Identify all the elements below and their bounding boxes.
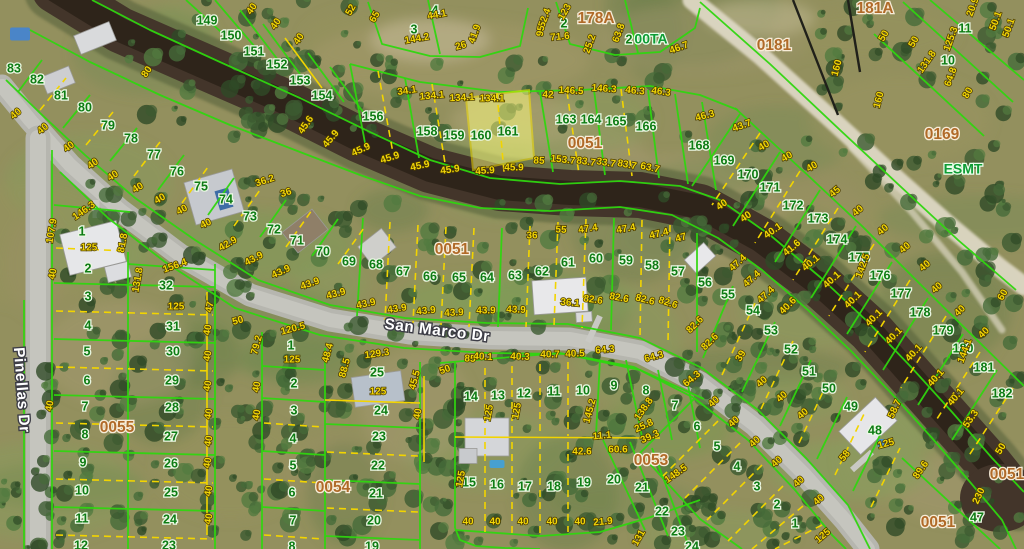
- lot-number-label: 24: [163, 512, 177, 526]
- block-number-label: 0051: [568, 135, 603, 152]
- lot-number-label: 77: [147, 147, 161, 161]
- lot-number-label: 63: [508, 268, 522, 282]
- block-number-label: 181A: [856, 0, 893, 17]
- lot-number-label: 50: [822, 381, 836, 395]
- dimension-label: 134.1: [479, 94, 504, 105]
- lot-number-label: 11: [75, 511, 88, 525]
- lot-number-label: 27: [164, 429, 178, 443]
- dimension-label: 43.9: [476, 306, 496, 317]
- dimension-label: 45.9: [504, 163, 524, 174]
- pool: [10, 28, 30, 41]
- lot-number-label: 31: [166, 319, 180, 333]
- dimension-label: 36.1: [560, 297, 581, 310]
- lot-number-label: 13: [491, 388, 505, 402]
- lot-number-label: 164: [581, 112, 602, 126]
- lot-number-label: 169: [714, 153, 735, 167]
- block-number-label: 0181: [757, 37, 792, 54]
- dimension-label: 40.1: [473, 351, 493, 363]
- lot-number-label: 16: [490, 477, 504, 491]
- lot-number-label: 21: [635, 480, 649, 494]
- block-number-label: 0051: [435, 241, 470, 258]
- dimension-label: 40: [489, 517, 501, 528]
- dimension-label: 40: [546, 517, 558, 528]
- lot-number-label: 178: [910, 305, 931, 319]
- lot-number-label: 59: [619, 253, 633, 267]
- lot-number-label: 81: [54, 88, 68, 102]
- lot-number-label: 181: [974, 360, 995, 374]
- dimension-label: 60.6: [608, 445, 628, 456]
- lot-number-label: 25: [164, 485, 178, 499]
- dimension-label: 134.1: [449, 92, 475, 104]
- lot-number-label: 70: [316, 244, 330, 258]
- dimension-label: 40: [574, 517, 586, 528]
- lot-number-label: 83: [7, 61, 21, 75]
- lot-number-label: 23: [671, 524, 685, 538]
- lot-number-label: 158: [417, 124, 438, 138]
- lot-number-label: 7: [672, 398, 679, 412]
- house-roof: [459, 449, 477, 464]
- lot-number-label: 2: [85, 261, 92, 275]
- lot-number-label: 163: [556, 112, 577, 126]
- dimension-label: 85: [533, 155, 545, 167]
- lot-number-label: 1: [288, 338, 295, 352]
- lot-number-label: 71: [290, 233, 304, 247]
- dimension-label: 45.9: [475, 165, 496, 177]
- lot-number-label: 8: [82, 427, 89, 441]
- lot-number-label: 149: [197, 13, 218, 27]
- lot-number-label: 5: [714, 439, 721, 453]
- lot-number-label: 21: [369, 486, 383, 500]
- lot-number-label: 179: [933, 323, 954, 337]
- lot-number-label: 150: [221, 28, 242, 42]
- lot-number-label: 29: [165, 373, 179, 387]
- lot-number-label: 2: [291, 376, 298, 390]
- map-code-label: ESMT: [944, 161, 983, 177]
- pool: [490, 460, 505, 468]
- lot-number-label: 61: [561, 255, 575, 269]
- dimension-label: 11.1: [592, 430, 612, 443]
- lot-number-label: 170: [738, 167, 759, 181]
- lot-number-label: 6: [84, 373, 91, 387]
- lot-number-label: 54: [746, 303, 760, 317]
- lot-number-label: 52: [784, 342, 798, 356]
- dimension-label: 125: [81, 243, 98, 254]
- lot-number-label: 7: [290, 513, 297, 527]
- lot-number-label: 1: [792, 516, 799, 530]
- lot-number-label: 2: [626, 32, 633, 46]
- dimension-label: 36: [526, 231, 538, 242]
- lot-number-label: 20: [367, 513, 381, 527]
- lot-number-label: 173: [808, 211, 829, 225]
- lot-number-label: 159: [444, 128, 465, 142]
- lot-number-label: 5: [290, 458, 297, 472]
- lot-number-label: 7: [82, 399, 89, 413]
- lot-number-label: 174: [827, 232, 848, 246]
- lot-number-label: 18: [547, 479, 561, 493]
- lot-number-label: 67: [396, 264, 410, 278]
- lot-number-label: 55: [721, 287, 735, 301]
- lot-number-label: 25: [370, 365, 384, 379]
- lot-number-label: 172: [783, 198, 804, 212]
- lot-number-label: 168: [689, 138, 710, 152]
- lot-number-label: 8: [289, 539, 296, 549]
- lot-number-label: 151: [244, 44, 265, 58]
- lot-number-label: 23: [162, 538, 176, 549]
- lot-number-label: 56: [698, 275, 712, 289]
- lot-number-label: 12: [517, 386, 531, 400]
- lot-number-label: 10: [941, 53, 955, 67]
- dimension-label: 40.7: [540, 350, 560, 361]
- dimension-label: 43.9: [506, 304, 526, 316]
- lot-number-label: 47: [970, 510, 984, 524]
- dimension-label: 55: [555, 224, 567, 236]
- lot-number-label: 24: [374, 403, 388, 417]
- lot-number-label: 30: [166, 344, 180, 358]
- lot-number-label: 22: [371, 458, 385, 472]
- lot-number-label: 65: [452, 270, 466, 284]
- dimension-label: 71.6: [550, 31, 571, 44]
- lot-number-label: 68: [369, 257, 383, 271]
- dimension-label: 40: [517, 517, 529, 528]
- lot-number-label: 6: [289, 485, 296, 499]
- block-number-label: 0054: [316, 479, 351, 496]
- lot-number-label: 72: [267, 222, 281, 236]
- lot-number-label: 4: [85, 318, 92, 332]
- dimension-label: 146.5: [558, 85, 584, 97]
- lot-number-label: 23: [372, 429, 386, 443]
- parcel-map-viewport[interactable]: 8382818079787776757473727170696867666564…: [0, 0, 1024, 549]
- dimension-label: 64.3: [595, 344, 616, 357]
- dimension-label: 43.9: [416, 305, 437, 318]
- lot-number-label: 80: [78, 100, 92, 114]
- lot-number-label: 11: [958, 21, 971, 35]
- dimension-label: 125: [168, 302, 185, 313]
- lot-number-label: 4: [734, 459, 741, 473]
- lot-number-label: 58: [645, 258, 659, 272]
- lot-number-label: 64: [480, 270, 494, 284]
- lot-number-label: 160: [471, 128, 492, 142]
- lot-number-label: 26: [164, 456, 178, 470]
- lot-number-label: 49: [844, 399, 858, 413]
- lot-number-label: 62: [535, 264, 549, 278]
- lot-number-label: 79: [101, 118, 115, 132]
- lot-number-label: 53: [764, 323, 778, 337]
- lot-number-label: 2: [774, 497, 781, 511]
- lot-number-label: 82: [30, 72, 44, 86]
- lot-number-label: 19: [577, 475, 591, 489]
- lot-number-label: 19: [365, 539, 379, 549]
- lot-line-yellow: [455, 437, 660, 438]
- lot-number-label: 171: [760, 180, 781, 194]
- map-code-label: 00TA: [634, 31, 667, 47]
- lot-number-label: 156: [363, 109, 384, 123]
- lot-number-label: 60: [589, 251, 603, 265]
- lot-number-label: 20: [607, 472, 621, 486]
- lot-number-label: 66: [423, 269, 437, 283]
- lot-number-label: 17: [518, 479, 532, 493]
- block-number-label: 0055: [100, 419, 135, 436]
- lot-number-label: 6: [694, 419, 701, 433]
- lot-number-label: 182: [992, 386, 1013, 400]
- lot-number-label: 153: [290, 73, 311, 87]
- lot-number-label: 22: [655, 504, 669, 518]
- lot-number-label: 75: [194, 179, 208, 193]
- lot-number-label: 3: [291, 403, 298, 417]
- block-number-label: 0053: [634, 452, 669, 469]
- dimension-label: 40.5: [565, 348, 585, 360]
- dimension-label: 42: [542, 89, 554, 101]
- dimension-label: 43.9: [444, 307, 464, 319]
- lot-number-label: 57: [671, 264, 685, 278]
- lot-number-label: 154: [312, 88, 333, 102]
- block-number-label: 178A: [577, 10, 614, 27]
- lot-number-label: 165: [606, 114, 627, 128]
- dimension-label: 146.3: [591, 83, 617, 96]
- lot-number-label: 10: [75, 483, 89, 497]
- lot-number-label: 51: [802, 364, 816, 378]
- lot-number-label: 76: [170, 164, 184, 178]
- lot-number-label: 161: [498, 124, 519, 138]
- block-number-label: 0051: [921, 514, 956, 531]
- dimension-label: 46.3: [625, 85, 646, 98]
- lot-number-label: 12: [74, 538, 88, 549]
- lot-number-label: 9: [80, 455, 87, 469]
- lot-number-label: 1: [79, 224, 86, 238]
- lot-number-label: 9: [611, 378, 618, 392]
- dimension-label: 21.9: [593, 516, 614, 529]
- lot-number-label: 152: [267, 57, 288, 71]
- dimension-label: 40.3: [510, 351, 530, 363]
- lot-number-label: 24: [685, 539, 699, 549]
- lot-number-label: 32: [159, 278, 173, 292]
- aerial-parcel-map[interactable]: 8382818079787776757473727170696867666564…: [0, 0, 1024, 549]
- house-roof: [576, 311, 593, 322]
- lot-number-label: 4: [290, 431, 297, 445]
- dimension-label: 134.1: [419, 90, 445, 103]
- lot-number-label: 69: [342, 254, 356, 268]
- lot-number-label: 78: [124, 131, 138, 145]
- dimension-label: 125: [284, 355, 301, 366]
- lot-number-label: 73: [243, 209, 257, 223]
- lot-number-label: 14: [464, 389, 478, 403]
- block-number-label: 0051: [990, 466, 1024, 483]
- dimension-label: 42.6: [572, 447, 592, 458]
- lot-number-label: 28: [165, 400, 179, 414]
- lot-number-label: 10: [576, 383, 590, 397]
- dimension-label: 125: [370, 387, 387, 398]
- lot-number-label: 166: [636, 119, 657, 133]
- dimension-label: 40: [462, 517, 474, 528]
- lot-number-label: 5: [84, 344, 91, 358]
- block-number-label: 0169: [925, 126, 960, 143]
- lot-number-label: 11: [547, 384, 560, 398]
- lot-number-label: 74: [219, 192, 233, 206]
- lot-number-label: 3: [85, 289, 92, 303]
- lot-number-label: 177: [891, 286, 912, 300]
- lot-number-label: 48: [868, 423, 882, 437]
- lot-number-label: 3: [754, 479, 761, 493]
- lot-number-label: 176: [870, 268, 891, 282]
